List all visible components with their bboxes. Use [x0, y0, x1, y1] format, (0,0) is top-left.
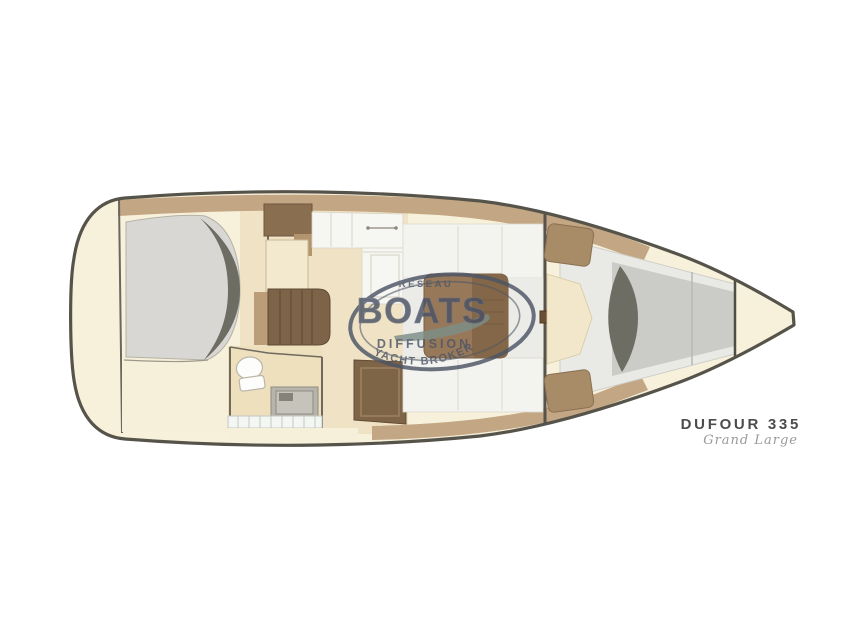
boat-floorplan-page: RÉSEAU BOATS DIFFUSION YACHT BROKER DUFO…: [0, 0, 850, 637]
aft-floor-strip: [228, 428, 358, 442]
wardrobe-cabinet: [264, 204, 312, 236]
chart-panel: [266, 240, 308, 292]
nav-seat-module: [354, 360, 406, 424]
model-variant: Grand Large: [703, 433, 798, 448]
head-sink: [271, 387, 318, 418]
watermark-network-label: RÉSEAU: [399, 279, 454, 290]
saloon-settee-top: [403, 224, 543, 278]
forward-locker-top: [544, 223, 595, 267]
forward-locker-bottom: [544, 369, 595, 413]
steps-side-trim: [254, 292, 268, 345]
companionway-steps: [268, 289, 330, 345]
watermark-brand: BOATS: [357, 290, 488, 331]
galley-counter: [312, 212, 403, 248]
shower-bench: [228, 416, 322, 428]
model-name: DUFOUR 335: [681, 416, 801, 433]
aft-cabin-floor: [122, 358, 232, 432]
floorplan-drawing: RÉSEAU BOATS DIFFUSION YACHT BROKER DUFO…: [0, 0, 850, 637]
